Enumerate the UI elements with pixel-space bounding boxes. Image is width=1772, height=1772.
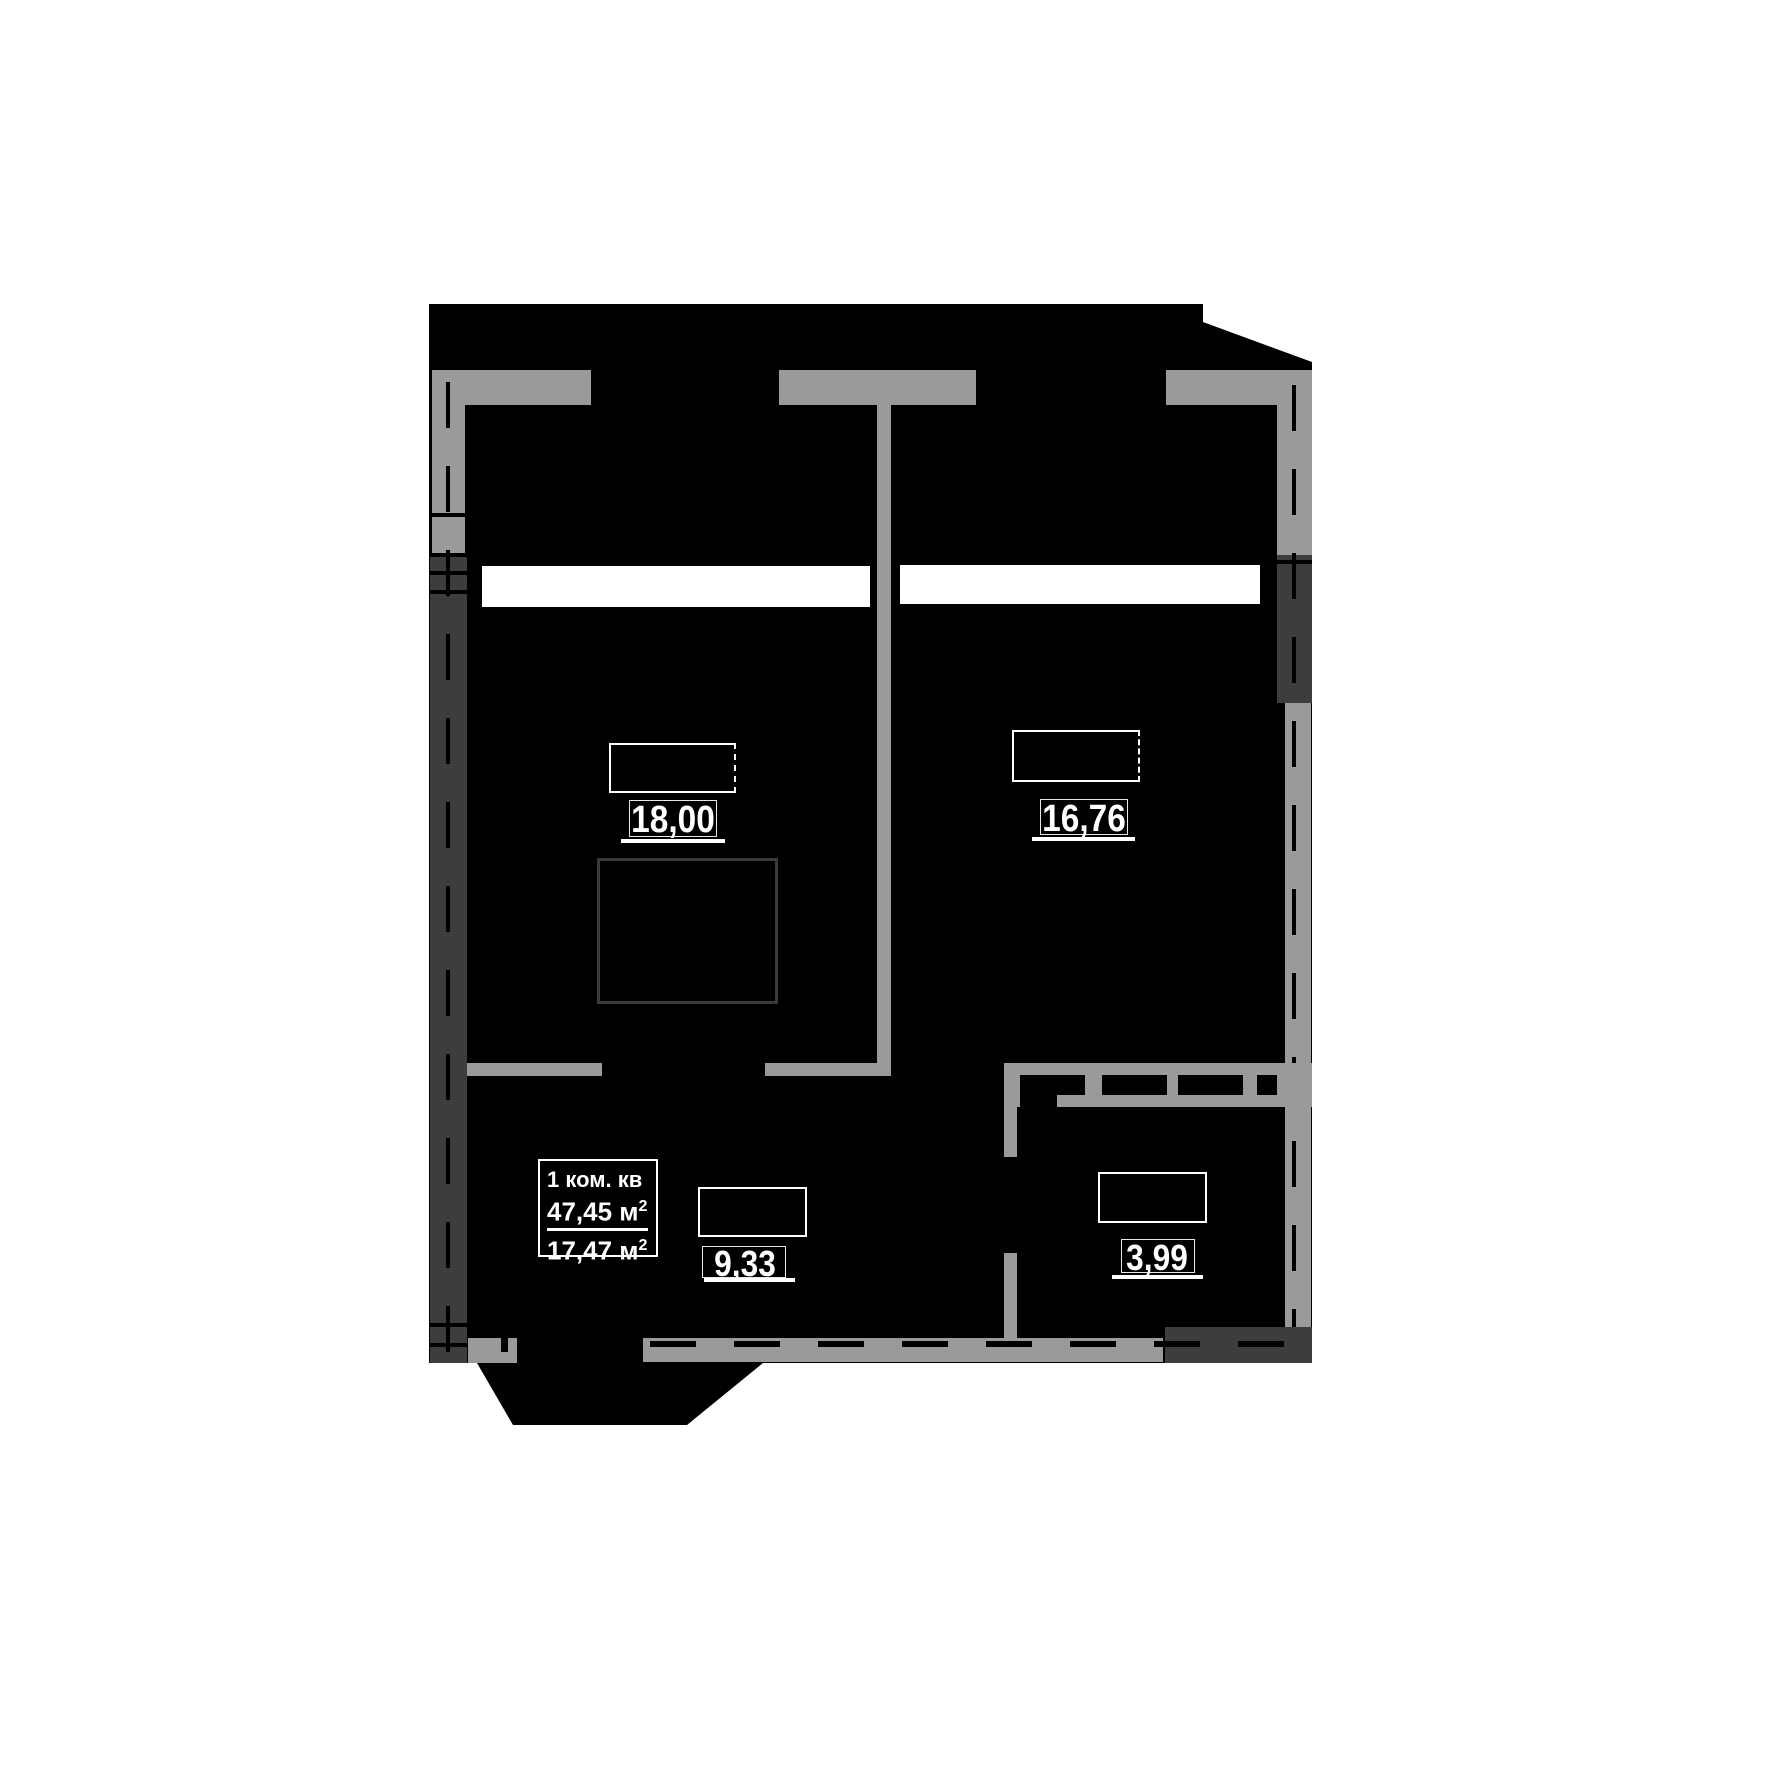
- wall-left-centerline: [446, 382, 450, 1354]
- slot-wall-mullion-2: [1167, 1075, 1178, 1095]
- shaft-square: [597, 858, 778, 1004]
- area-label-hall: 9,33: [709, 1246, 781, 1282]
- slot-wall-end-block: [1277, 1063, 1312, 1107]
- underline-bathroom: [1112, 1275, 1203, 1279]
- area-label-bathroom: 3,99: [1121, 1240, 1193, 1276]
- living-area-value: 17,47 м2: [547, 1231, 656, 1266]
- wall-right-centerline: [1292, 385, 1296, 1355]
- partition-hall-right: [765, 1063, 891, 1076]
- floor-plan-canvas: 18,00 16,76 9,33 3,99 1 ком. кв 47,45 м2…: [0, 0, 1772, 1772]
- fixture-bathroom: [1098, 1172, 1207, 1223]
- area-label-living-room: 18,00: [625, 801, 722, 839]
- slot-wall-connector: [1004, 1063, 1020, 1107]
- wall-top-right: [1166, 370, 1277, 405]
- slot-wall-top-rail: [1020, 1063, 1312, 1075]
- wall-top-middle: [779, 370, 976, 405]
- fixture-living-room: [609, 743, 736, 793]
- wall-left-tick-2: [430, 553, 467, 557]
- wall-left-tick-4: [430, 590, 467, 594]
- wall-left-tick-1: [430, 513, 467, 517]
- fixture-hall: [698, 1187, 807, 1237]
- apartment-info-box: 1 ком. кв 47,45 м2 17,47 м2: [538, 1159, 658, 1257]
- underline-living-room: [621, 839, 725, 843]
- slot-wall-mullion-3: [1243, 1075, 1257, 1095]
- underline-hall: [704, 1278, 795, 1282]
- slot-wall-mullion-1: [1085, 1075, 1102, 1095]
- fixture-bedroom: [1012, 730, 1140, 782]
- wall-left-tick-5: [430, 1323, 467, 1327]
- slot-wall-bottom-rail: [1057, 1095, 1312, 1107]
- partition-bath-lower: [1004, 1253, 1017, 1338]
- wall-right-tick-1: [1277, 560, 1312, 564]
- window-left: [482, 566, 870, 607]
- underline-bedroom: [1032, 837, 1135, 841]
- window-right: [900, 565, 1260, 604]
- wall-bottom-left-segment: [468, 1338, 517, 1363]
- wall-bottom-dashline: [650, 1341, 1300, 1347]
- wall-partition-stem: [877, 405, 891, 1076]
- area-label-bedroom: 16,76: [1036, 800, 1133, 838]
- partition-hall-left: [467, 1063, 602, 1076]
- wall-left-tick-3: [430, 571, 467, 575]
- total-area-value: 47,45 м2: [547, 1192, 648, 1231]
- wall-right-lower: [1285, 703, 1311, 1327]
- wall-left-tick-6: [430, 1343, 467, 1347]
- apartment-type-label: 1 ком. кв: [547, 1167, 656, 1192]
- wall-bottom-left-tick: [501, 1338, 508, 1352]
